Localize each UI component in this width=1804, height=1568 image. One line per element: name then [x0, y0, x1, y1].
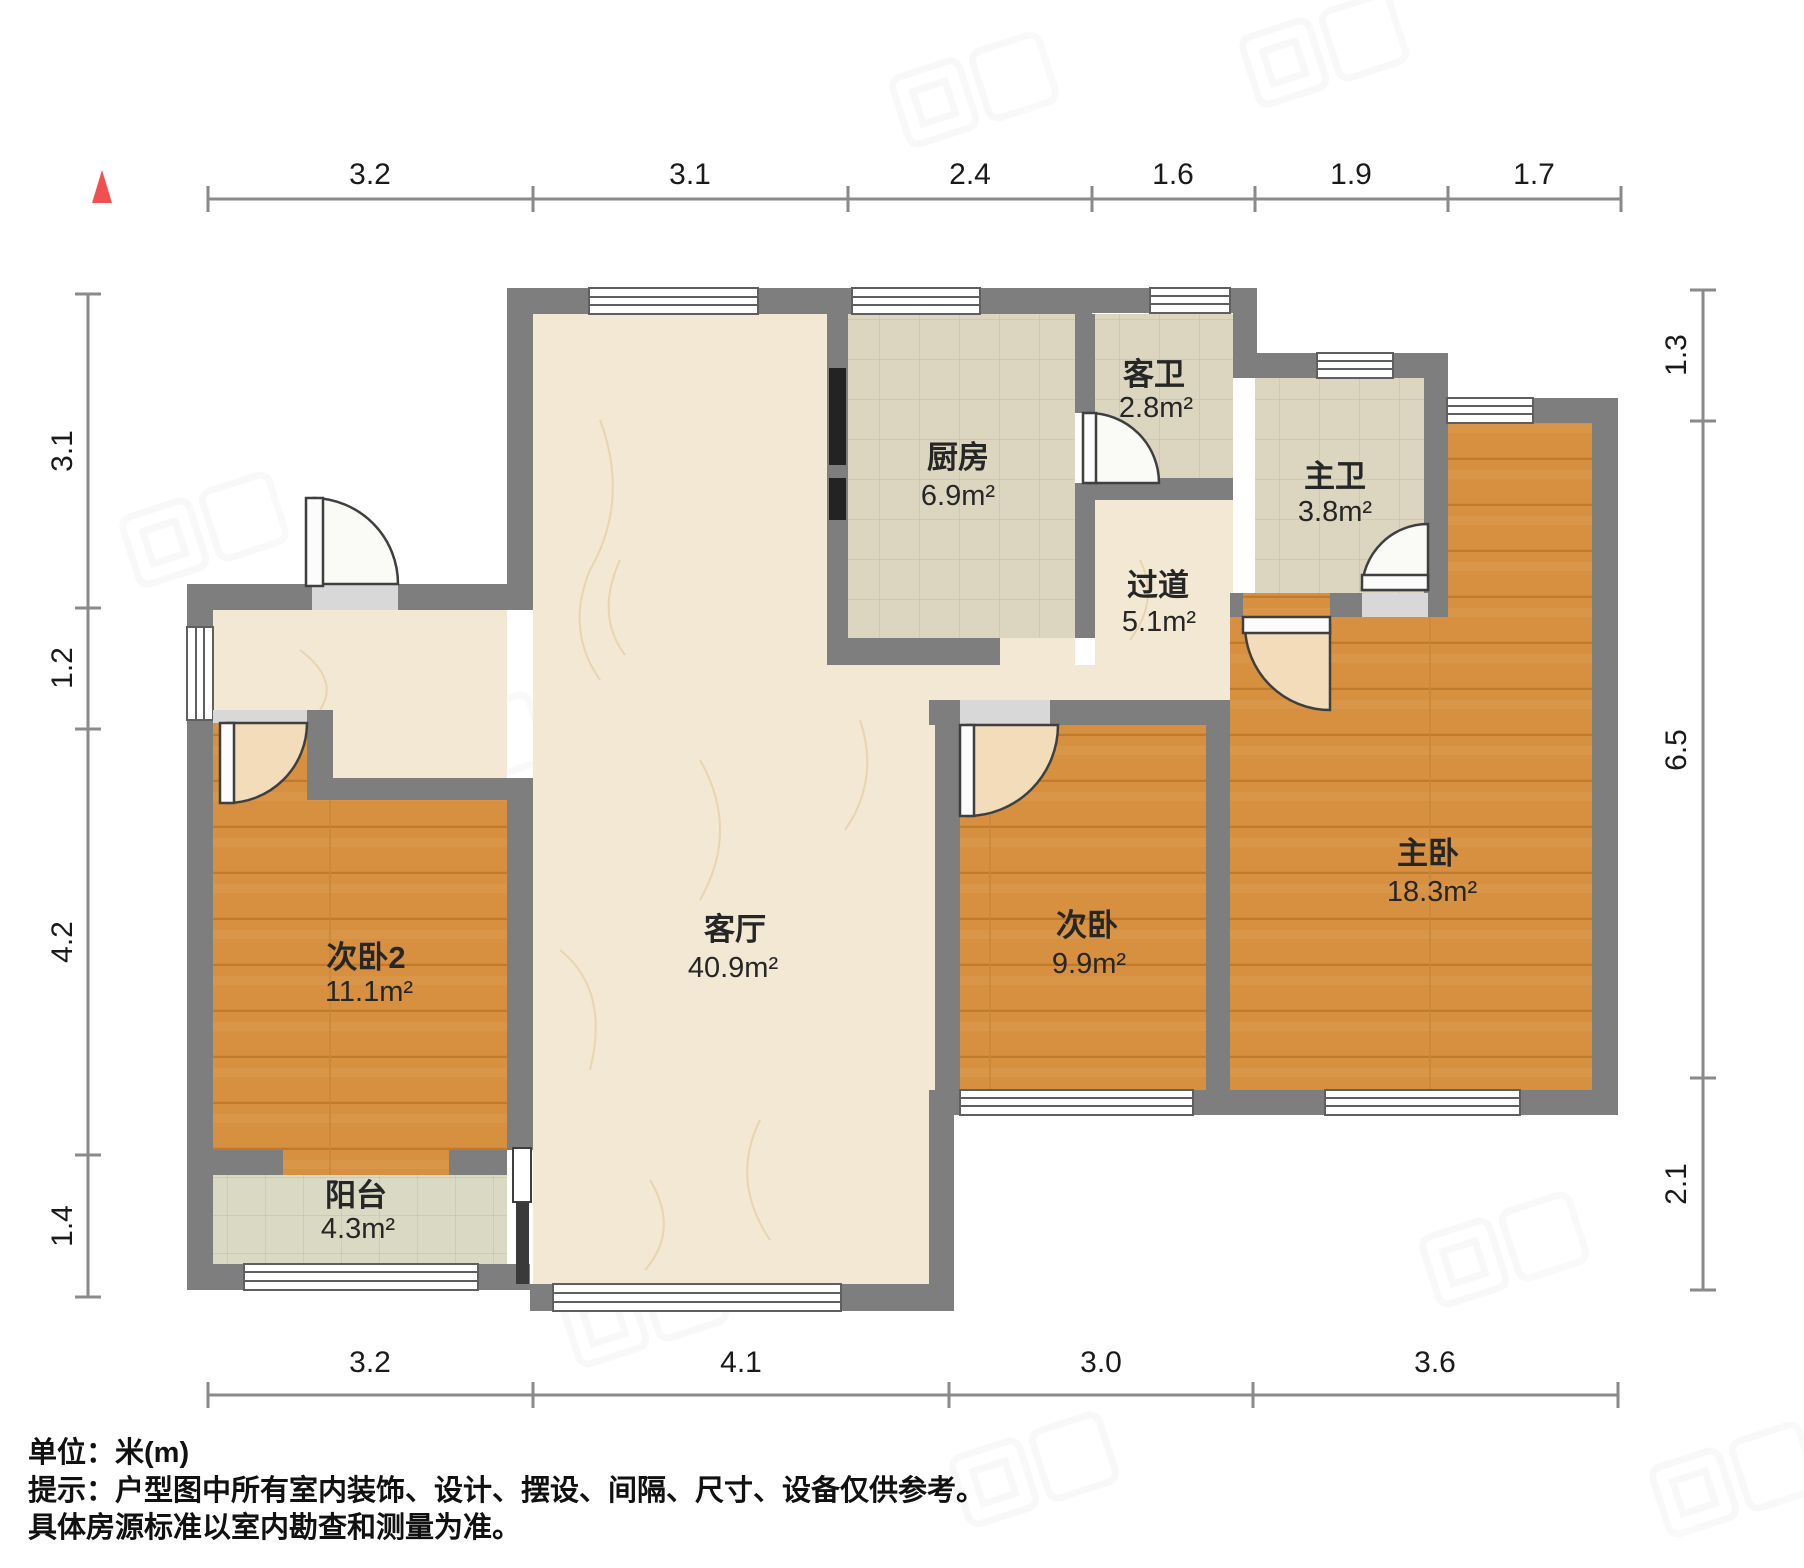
dim-label: 3.1 [46, 430, 79, 472]
entry-door-swing [314, 498, 398, 584]
north-compass-icon [92, 170, 112, 203]
room-name-guest-bathroom: 客卫 [1123, 357, 1185, 392]
wall-segment [827, 314, 848, 638]
room-name-bedroom: 次卧 [1056, 908, 1118, 943]
room-name-living-room: 客厅 [704, 912, 766, 947]
room-name-kitchen: 厨房 [927, 440, 989, 475]
room-area-master-bedroom: 18.3m² [1387, 876, 1478, 908]
entry-corridor-floor [213, 610, 507, 710]
room-area-master-bathroom: 3.8m² [1298, 496, 1372, 528]
bedroom-2-door-lintel [213, 710, 307, 723]
window [1150, 288, 1230, 313]
wall-segment [1230, 593, 1243, 617]
wall-segment [1428, 593, 1448, 617]
room-area-bedroom: 9.9m² [1052, 948, 1126, 980]
dim-label: 2.4 [949, 158, 991, 191]
room-area-kitchen: 6.9m² [921, 480, 995, 512]
entry-door-threshold [312, 584, 398, 610]
dim-label: 3.1 [669, 158, 711, 191]
watermark-mark [120, 472, 288, 586]
wall-segment [187, 1150, 283, 1175]
dim-label: 1.7 [1513, 158, 1555, 191]
window [553, 1284, 841, 1311]
unit-note: 单位：米(m) [28, 1435, 189, 1469]
dim-label: 4.2 [46, 921, 79, 963]
floor-plan-canvas: 厨房 6.9m² 客卫 2.8m² 主卫 3.8m² 过道 5.1m² 客厅 4… [0, 0, 1804, 1568]
hallway-floor [929, 665, 1230, 700]
dimension-top: 3.2 3.1 2.4 1.6 1.9 1.7 [208, 158, 1621, 212]
floor-plan-page: 厨房 6.9m² 客卫 2.8m² 主卫 3.8m² 过道 5.1m² 客厅 4… [0, 0, 1804, 1568]
wall-segment [935, 700, 960, 1090]
master-bathroom-door-threshold [1362, 593, 1428, 617]
watermark-mark [1650, 1422, 1804, 1536]
window [187, 627, 213, 720]
window [1325, 1090, 1520, 1115]
bedroom-door-leaf [960, 725, 974, 816]
watermark-mark [950, 1412, 1118, 1526]
wall-segment [307, 710, 333, 800]
dimension-bottom: 3.2 4.1 3.0 3.6 [208, 1346, 1618, 1408]
room-name-master-bedroom: 主卧 [1397, 836, 1459, 871]
room-name-hallway: 过道 [1127, 568, 1189, 603]
kitchen-flue-shaft [829, 368, 846, 465]
kitchen-flue-shaft [829, 478, 846, 520]
wall-segment [827, 638, 1000, 665]
wall-segment [1206, 725, 1230, 1090]
living-room-floor-top [533, 314, 827, 640]
window [1447, 398, 1533, 423]
wall-segment [449, 1150, 507, 1175]
wall-segment [333, 778, 533, 800]
wall-segment [1592, 398, 1618, 1115]
wall-segment [1075, 483, 1095, 638]
window [589, 288, 758, 314]
wall-segment [929, 700, 960, 725]
bedroom-door-threshold [960, 700, 1050, 725]
watermark-mark [1240, 0, 1408, 107]
window [1317, 353, 1393, 378]
dim-label: 1.9 [1330, 158, 1372, 191]
dim-label: 1.3 [1660, 334, 1693, 376]
room-area-bedroom-2: 11.1m² [325, 976, 413, 1008]
window [852, 288, 980, 314]
balcony-opening-floor [278, 1150, 449, 1175]
balcony-door-panel [513, 1148, 531, 1202]
entry-corridor-floor [333, 710, 507, 778]
window [960, 1090, 1193, 1115]
dim-label: 6.5 [1660, 729, 1693, 771]
room-name-balcony: 阳台 [325, 1178, 387, 1213]
dimension-left: 3.1 1.2 4.2 1.4 [46, 294, 101, 1297]
watermark-mark [1420, 1192, 1588, 1306]
room-area-hallway: 5.1m² [1122, 606, 1196, 638]
wall-segment [1330, 593, 1362, 617]
balcony-divider-wall [516, 1202, 529, 1284]
disclaimer-line-1: 提示：户型图中所有室内装饰、设计、摆设、间隔、尺寸、设备仅供参考。 [28, 1473, 985, 1507]
disclaimer-line-2: 具体房源标准以室内勘查和测量为准。 [28, 1510, 521, 1544]
watermark-mark [890, 32, 1058, 146]
room-area-balcony: 4.3m² [321, 1213, 395, 1245]
kitchen-entry-floor [1000, 638, 1075, 665]
room-area-guest-bathroom: 2.8m² [1119, 392, 1193, 424]
dim-label: 3.2 [349, 1346, 391, 1379]
bedroom-2-floor [213, 800, 507, 1150]
dim-label: 3.2 [349, 158, 391, 191]
dimension-right: 1.3 6.5 2.1 [1660, 290, 1716, 1290]
master-bedroom-floor [1448, 423, 1592, 617]
wall-segment [1050, 700, 1230, 725]
master-bedroom-door-leaf [1243, 617, 1330, 633]
kitchen-floor [848, 314, 1075, 638]
dim-label: 2.1 [1660, 1163, 1693, 1205]
bedroom-2-door-leaf [220, 723, 234, 803]
dim-label: 3.6 [1414, 1346, 1456, 1379]
room-name-bedroom-2: 次卧2 [326, 940, 405, 975]
dim-label: 1.6 [1152, 158, 1194, 191]
guest-bathroom-door-leaf [1083, 413, 1096, 483]
master-bedroom-doorway-floor [1243, 593, 1330, 617]
master-bathroom-door-leaf [1362, 575, 1428, 590]
wall-segment [1075, 314, 1095, 413]
room-name-master-bathroom: 主卫 [1304, 459, 1366, 494]
wall-segment [507, 778, 533, 1150]
dim-label: 3.0 [1080, 1346, 1122, 1379]
window [244, 1264, 478, 1290]
room-area-living-room: 40.9m² [688, 952, 779, 984]
dim-label: 1.2 [46, 647, 79, 689]
dim-label: 4.1 [720, 1346, 762, 1379]
entry-door-leaf [306, 498, 323, 586]
wall-segment [507, 288, 533, 610]
wall-segment [929, 1090, 954, 1311]
footer-notes: 单位：米(m) 提示：户型图中所有室内装饰、设计、摆设、间隔、尺寸、设备仅供参考… [28, 1435, 985, 1544]
dim-label: 1.4 [46, 1205, 79, 1247]
living-room-floor-main [533, 610, 935, 1284]
